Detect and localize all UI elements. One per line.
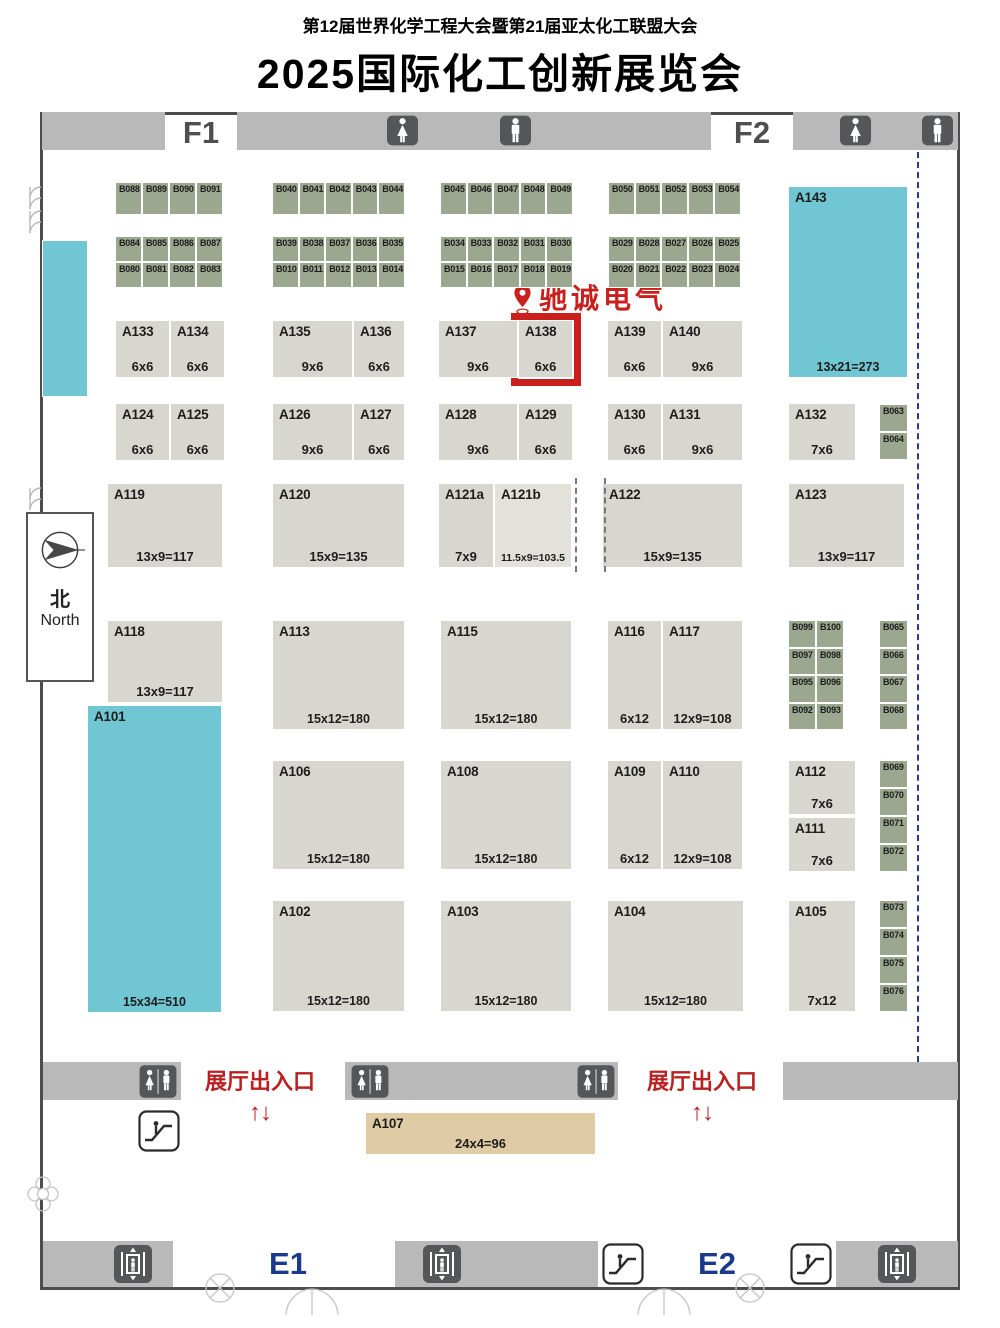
booth-size: 13x9=117: [108, 684, 222, 699]
booth-size: 6x6: [354, 442, 404, 457]
booth-size: 9x6: [273, 359, 352, 374]
booth-B010: B010: [272, 262, 299, 288]
booth-A118: A11813x9=117: [107, 620, 223, 703]
booth-B097: B097: [788, 648, 816, 676]
booth-id: B035: [382, 238, 403, 248]
booth-id: B087: [200, 238, 221, 248]
booth-id: B063: [883, 406, 904, 416]
booth-B013: B013: [352, 262, 379, 288]
exhibitor-name: 驰诚电气: [539, 284, 667, 313]
booth-id: B019: [550, 264, 571, 274]
booth-size: 9x6: [663, 442, 742, 457]
female-toilet-icon: [386, 115, 419, 146]
booth-A115: A11515x12=180: [440, 620, 572, 730]
booth-id: B080: [119, 264, 140, 274]
booth-id: A110: [669, 764, 700, 779]
booth-id: A111: [795, 821, 825, 836]
north-label-en: North: [28, 611, 92, 630]
booth-id: B028: [639, 238, 660, 248]
booth-id: A101: [94, 709, 125, 724]
booth-B076: B076: [879, 984, 908, 1012]
booth-B046: B046: [467, 182, 494, 215]
booth-id: B045: [444, 184, 465, 194]
elevator-icon: [422, 1244, 462, 1284]
booth-B086: B086: [169, 236, 196, 262]
booth-id: B014: [382, 264, 403, 274]
male-toilet-icon: [921, 115, 954, 146]
booth-id: B025: [718, 238, 739, 248]
booth-id: B075: [883, 958, 904, 968]
booth-id: A130: [614, 407, 645, 422]
door-pair-icon: [26, 186, 42, 210]
booth-id: A112: [795, 764, 826, 779]
booth-A143: A14313x21=273: [788, 186, 908, 378]
north-compass: 北 North: [26, 512, 94, 682]
booth-id: B029: [612, 238, 633, 248]
booth-size: 13x9=117: [108, 549, 222, 564]
wall-bar: [237, 112, 711, 150]
booth-A111: A1117x6: [788, 817, 856, 872]
booth-size: 7x6: [789, 853, 855, 868]
booth-size: 6x6: [608, 359, 661, 374]
booth-B053: B053: [688, 182, 715, 215]
booth-B047: B047: [493, 182, 520, 215]
booth-id: B091: [200, 184, 221, 194]
circle-door-icon: [728, 1268, 772, 1308]
booth-size: 6x6: [354, 359, 404, 374]
entrance-label-1: 展厅出入口↑↓: [190, 1064, 330, 1127]
booth-size: 13x21=273: [789, 360, 907, 374]
booth-size: 15x12=180: [273, 994, 404, 1008]
booth-B099: B099: [788, 620, 816, 648]
booth-id: B039: [276, 238, 297, 248]
wall-bar: [42, 112, 165, 150]
location-pin-icon: [511, 284, 534, 320]
booth-B037: B037: [325, 236, 352, 262]
booth-B095: B095: [788, 675, 816, 703]
booth-id: B072: [883, 846, 904, 856]
booth-B029: B029: [608, 236, 635, 262]
booth-split-dashed-line: [575, 478, 577, 572]
booth-B092: B092: [788, 703, 816, 731]
elevator-icon: [877, 1244, 917, 1284]
booth-size: 15x12=180: [273, 712, 404, 726]
booth-B075: B075: [879, 956, 908, 984]
booth-id: B052: [665, 184, 686, 194]
booth-A129: A1296x6: [518, 403, 573, 461]
booth-B016: B016: [467, 262, 494, 288]
booth-id: A133: [122, 324, 153, 339]
booth-id: B020: [612, 264, 633, 274]
booth-id: B027: [665, 238, 686, 248]
booth-size: 7x12: [789, 993, 855, 1008]
booth-B022: B022: [661, 262, 688, 288]
booth-B042: B042: [325, 182, 352, 215]
booth-size: 6x6: [116, 442, 169, 457]
booth-size: 6x6: [608, 442, 661, 457]
elevator-icon: [113, 1244, 153, 1284]
booth-A108: A10815x12=180: [440, 760, 572, 870]
booth-size: 15x12=180: [273, 852, 404, 866]
booth-id: B073: [883, 902, 904, 912]
booth-id: A134: [177, 324, 208, 339]
booth-size: 7x6: [789, 796, 855, 811]
booth-B069: B069: [879, 760, 908, 788]
booth-size: 15x12=180: [441, 994, 571, 1008]
booth-id: B070: [883, 790, 904, 800]
booth-B066: B066: [879, 648, 908, 676]
booth-B050: B050: [608, 182, 635, 215]
entrance-text: 展厅出入口: [190, 1064, 330, 1096]
booth-B093: B093: [816, 703, 844, 731]
booth-size: 11.5x9=103.5: [495, 552, 571, 564]
booth-B019: B019: [546, 262, 573, 288]
booth-B096: B096: [816, 675, 844, 703]
escalator-icon: [138, 1110, 180, 1152]
booth-A107: A10724x4=96: [365, 1112, 596, 1155]
booth-id: A116: [614, 624, 645, 639]
booth-A124: A1246x6: [115, 403, 170, 461]
north-label-zh: 北: [28, 589, 92, 611]
booth-A102: A10215x12=180: [272, 900, 405, 1012]
booth-id: B038: [303, 238, 324, 248]
booth-id: A107: [372, 1116, 403, 1131]
booth-id: A117: [669, 624, 700, 639]
booth-A138: A1386x6: [518, 320, 573, 378]
booth-B011: B011: [299, 262, 326, 288]
booth-A109: A1096x12: [607, 760, 662, 870]
booth-id: B024: [718, 264, 739, 274]
compass-icon: [29, 563, 91, 580]
booth-id: A124: [122, 407, 153, 422]
booth-B027: B027: [661, 236, 688, 262]
booth-A101: A10115x34=510: [87, 705, 222, 1013]
booth-B030: B030: [546, 236, 573, 262]
circle-door-icon: [198, 1268, 242, 1308]
booth-B067: B067: [879, 675, 908, 703]
booth-A104: A10415x12=180: [607, 900, 744, 1012]
booth-A137: A1379x6: [438, 320, 518, 378]
booth-id: A128: [445, 407, 476, 422]
entrance-arrows: ↑↓: [632, 1099, 772, 1127]
booth-A127: A1276x6: [353, 403, 405, 461]
booth-id: B041: [303, 184, 324, 194]
booth-id: B012: [329, 264, 350, 274]
booth-B024: B024: [714, 262, 741, 288]
unisex-toilet-icon: [577, 1064, 615, 1099]
booth-id: A105: [795, 904, 826, 919]
booth-id: A139: [614, 324, 645, 339]
booth-B041: B041: [299, 182, 326, 215]
booth-A125: A1256x6: [170, 403, 225, 461]
booth-A128: A1289x6: [438, 403, 518, 461]
booth-A139: A1396x6: [607, 320, 662, 378]
booth-B089: B089: [142, 182, 169, 215]
booth-size: 6x6: [519, 442, 572, 457]
booth-id: B053: [692, 184, 713, 194]
booth-size: 12x9=108: [663, 711, 742, 726]
female-toilet-icon: [839, 115, 872, 146]
booth-id: A106: [279, 764, 310, 779]
exhibition-floor-plan-page: 第12届世界化学工程大会暨第21届亚太化工联盟大会 2025国际化工创新展览会 …: [0, 0, 1000, 1328]
booth-size: 15x9=135: [273, 549, 404, 564]
booth-B070: B070: [879, 788, 908, 816]
hall-label-e1: E1: [252, 1247, 324, 1281]
booth-A113: A11315x12=180: [272, 620, 405, 730]
unisex-toilet-icon: [139, 1064, 177, 1099]
booth-size: 15x34=510: [88, 995, 221, 1009]
booth-B023: B023: [688, 262, 715, 288]
booth-A103: A10315x12=180: [440, 900, 572, 1012]
booth-B085: B085: [142, 236, 169, 262]
booth-id: B100: [820, 622, 841, 632]
booth-A135: A1359x6: [272, 320, 353, 378]
booth-id: A121a: [445, 487, 484, 502]
booth-B098: B098: [816, 648, 844, 676]
booth-id: B066: [883, 650, 904, 660]
booth-id: B082: [173, 264, 194, 274]
booth-B043: B043: [352, 182, 379, 215]
booth-id: B099: [792, 622, 813, 632]
booth-A133: A1336x6: [115, 320, 170, 378]
booth-B033: B033: [467, 236, 494, 262]
booth-B036: B036: [352, 236, 379, 262]
booth-id: B015: [444, 264, 465, 274]
booth-id: A102: [279, 904, 310, 919]
booth-B087: B087: [196, 236, 223, 262]
booth-A110: A11012x9=108: [662, 760, 743, 870]
booth-size: 24x4=96: [366, 1136, 595, 1151]
booth-id: A122: [609, 487, 640, 502]
booth-id: A136: [360, 324, 391, 339]
booth-id: B022: [665, 264, 686, 274]
booth-id: B064: [883, 434, 904, 444]
booth-id: B011: [303, 264, 323, 274]
booth-size: 6x12: [608, 851, 661, 866]
booth-B021: B021: [635, 262, 662, 288]
booth-A130: A1306x6: [607, 403, 662, 461]
booth-size: 15x12=180: [608, 994, 743, 1008]
booth-id: B067: [883, 677, 904, 687]
booth-B063: B063: [879, 404, 908, 432]
booth-id: B054: [718, 184, 739, 194]
booth-B064: B064: [879, 432, 908, 460]
entrance-text: 展厅出入口: [632, 1064, 772, 1096]
booth-B014: B014: [378, 262, 405, 288]
booth-id: B032: [497, 238, 518, 248]
booth-size: 6x6: [116, 359, 169, 374]
booth-B051: B051: [635, 182, 662, 215]
booth-id: A109: [614, 764, 645, 779]
booth-id: A135: [279, 324, 310, 339]
door-pair-icon: [26, 210, 42, 234]
booth-A117: A11712x9=108: [662, 620, 743, 730]
booth-id: B047: [497, 184, 518, 194]
booth-id: B013: [356, 264, 377, 274]
booth-B039: B039: [272, 236, 299, 262]
booth-A106: A10615x12=180: [272, 760, 405, 870]
booth-id: A103: [447, 904, 478, 919]
booth-id: A123: [795, 487, 826, 502]
booth-id: B034: [444, 238, 465, 248]
booth-id: A104: [614, 904, 645, 919]
booth-A116: A1166x12: [607, 620, 662, 730]
booth-B052: B052: [661, 182, 688, 215]
booth-B020: B020: [608, 262, 635, 288]
booth-id: B088: [119, 184, 140, 194]
booth-id: B090: [173, 184, 194, 194]
booth-id: B068: [883, 705, 904, 715]
booth-size: 13x9=117: [789, 549, 904, 564]
booth-id: B023: [692, 264, 713, 274]
booth-size: 15x9=135: [603, 549, 742, 564]
booth-id: B017: [497, 264, 518, 274]
booth-A119: A11913x9=117: [107, 483, 223, 568]
booth-id: B085: [146, 238, 167, 248]
booth-B045: B045: [440, 182, 467, 215]
booth-id: B083: [200, 264, 221, 274]
booth-id: A140: [669, 324, 700, 339]
booth-id: A127: [360, 407, 391, 422]
booth-id: B021: [639, 264, 660, 274]
booth-B026: B026: [688, 236, 715, 262]
booth-A105: A1057x12: [788, 900, 856, 1012]
booth-B100: B100: [816, 620, 844, 648]
booth-id: B069: [883, 762, 904, 772]
booth-id: A126: [279, 407, 310, 422]
boundary-dashed-line: [917, 152, 919, 1062]
booth-id: B016: [471, 264, 492, 274]
booth-id: B033: [471, 238, 492, 248]
escalator-icon: [602, 1243, 644, 1285]
booth-id: B051: [639, 184, 660, 194]
booth-B065: B065: [879, 620, 908, 648]
booth-id: B096: [820, 677, 841, 687]
booth-B032: B032: [493, 236, 520, 262]
booth-id: B031: [524, 238, 545, 248]
booth-B044: B044: [378, 182, 405, 215]
booth-B025: B025: [714, 236, 741, 262]
wall-bar: [43, 1241, 173, 1287]
booth-id: B030: [550, 238, 571, 248]
exhibitor-marker: 驰诚电气: [511, 284, 667, 320]
booth-size: 7x6: [789, 442, 855, 457]
booth-size: 9x6: [663, 359, 742, 374]
booth-size: 9x6: [439, 442, 517, 457]
booth-id: B046: [471, 184, 492, 194]
booth-B018: B018: [520, 262, 547, 288]
floor-plan-map: 北 North 驰诚电气 A1336x6A1346x6A1359x6A1366x…: [0, 0, 1000, 1328]
booth-B068: B068: [879, 703, 908, 731]
booth-B017: B017: [493, 262, 520, 288]
booth-id: A132: [795, 407, 826, 422]
booth-id: A138: [525, 324, 556, 339]
booth-B054: B054: [714, 182, 741, 215]
booth-split-dashed-line: [604, 478, 606, 572]
booth-size: 6x12: [608, 711, 661, 726]
booth-id: A113: [279, 624, 310, 639]
booth-id: B018: [524, 264, 545, 274]
male-toilet-icon: [499, 115, 532, 146]
booth-A121b: A121b11.5x9=103.5: [494, 483, 572, 568]
booth-id: B036: [356, 238, 377, 248]
booth-A131: A1319x6: [662, 403, 743, 461]
booth-A136: A1366x6: [353, 320, 405, 378]
entrance-arrows: ↑↓: [190, 1099, 330, 1127]
booth-B082: B082: [169, 262, 196, 288]
booth-id: B010: [276, 264, 297, 274]
booth-id: B048: [524, 184, 545, 194]
booth-A134: A1346x6: [170, 320, 225, 378]
booth-id: B065: [883, 622, 904, 632]
booth-id: B044: [382, 184, 403, 194]
booth-id: B089: [146, 184, 167, 194]
booth-B031: B031: [520, 236, 547, 262]
booth-size: 15x12=180: [441, 852, 571, 866]
booth-id: A108: [447, 764, 478, 779]
booth-id: B093: [820, 705, 841, 715]
booth-id: A119: [114, 487, 145, 502]
booth-B088: B088: [115, 182, 142, 215]
booth-id: A115: [447, 624, 478, 639]
booth-B074: B074: [879, 928, 908, 956]
booth-size: 9x6: [273, 442, 352, 457]
booth-id: B086: [173, 238, 194, 248]
booth-id: B040: [276, 184, 297, 194]
booth-B040: B040: [272, 182, 299, 215]
booth-id: A137: [445, 324, 476, 339]
booth-size: 6x6: [171, 359, 224, 374]
unisex-toilet-icon: [351, 1064, 389, 1099]
booth-B072: B072: [879, 844, 908, 872]
booth-A120: A12015x9=135: [272, 483, 405, 568]
booth-id: A131: [669, 407, 700, 422]
booth-B083: B083: [196, 262, 223, 288]
cyan-strip: [42, 240, 88, 397]
entrance-label-2: 展厅出入口↑↓: [632, 1064, 772, 1127]
booth-B048: B048: [520, 182, 547, 215]
booth-id: B037: [329, 238, 350, 248]
hall-label-f2: F2: [711, 116, 793, 150]
booth-A122: A12215x9=135: [602, 483, 743, 568]
booth-id: B076: [883, 986, 904, 996]
booth-A140: A1409x6: [662, 320, 743, 378]
booth-B073: B073: [879, 900, 908, 928]
booth-id: A121b: [501, 487, 541, 502]
booth-size: 6x6: [171, 442, 224, 457]
booth-id: B097: [792, 650, 813, 660]
booth-id: B098: [820, 650, 841, 660]
booth-id: A129: [525, 407, 556, 422]
swing-door-icon: [284, 1286, 340, 1316]
booth-size: 6x6: [519, 359, 572, 374]
booth-B081: B081: [142, 262, 169, 288]
escalator-icon: [790, 1243, 832, 1285]
booth-A126: A1269x6: [272, 403, 353, 461]
booth-id: B074: [883, 930, 904, 940]
booth-id: B050: [612, 184, 633, 194]
booth-id: A125: [177, 407, 208, 422]
booth-B049: B049: [546, 182, 573, 215]
booth-B035: B035: [378, 236, 405, 262]
booth-B071: B071: [879, 816, 908, 844]
booth-id: A120: [279, 487, 310, 502]
booth-A123: A12313x9=117: [788, 483, 905, 568]
booth-id: A118: [114, 624, 145, 639]
booth-id: B026: [692, 238, 713, 248]
door-pair-icon: [26, 487, 42, 511]
booth-B090: B090: [169, 182, 196, 215]
